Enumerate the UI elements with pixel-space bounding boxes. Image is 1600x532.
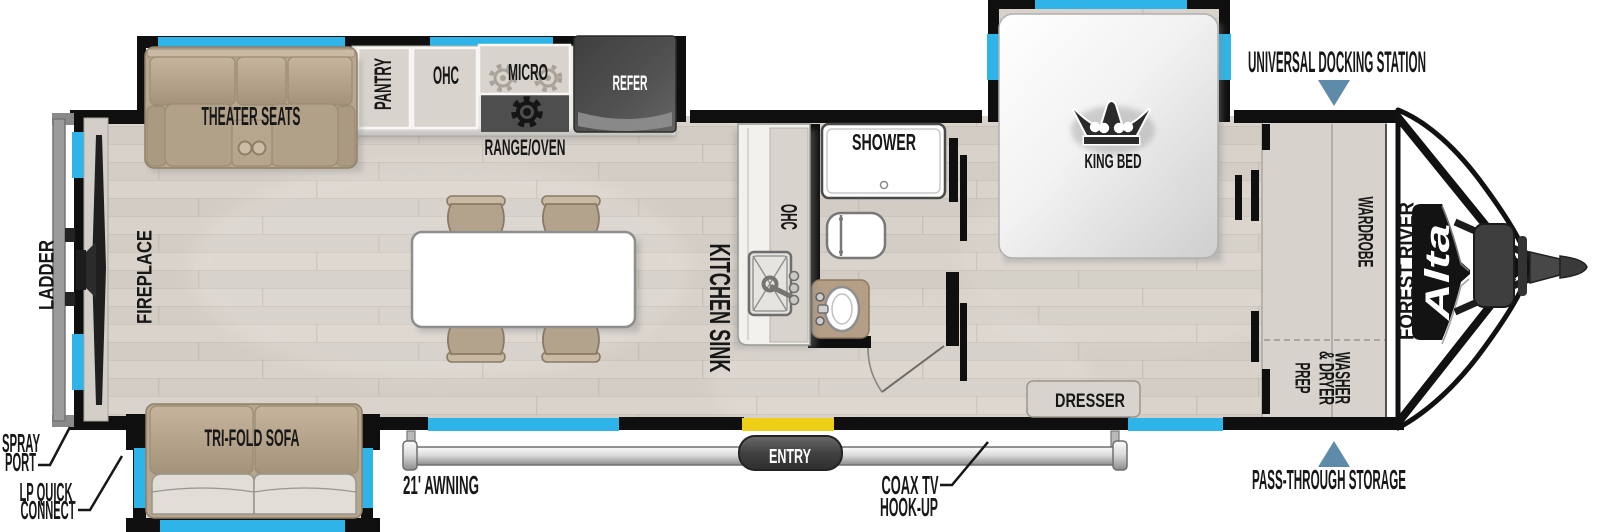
svg-text:ENTRY: ENTRY (769, 445, 812, 468)
svg-text:SHOWER: SHOWER (852, 130, 916, 156)
svg-text:OHC: OHC (433, 63, 459, 90)
svg-text:FIREPLACE: FIREPLACE (132, 230, 157, 324)
svg-text:THEATER SEATS: THEATER SEATS (202, 101, 301, 131)
svg-text:PANTRY: PANTRY (371, 58, 397, 110)
svg-text:DRESSER: DRESSER (1055, 390, 1125, 411)
svg-text:HOOK-UP: HOOK-UP (880, 492, 938, 522)
svg-text:21' AWNING: 21' AWNING (403, 470, 479, 500)
svg-text:TRI-FOLD SOFA: TRI-FOLD SOFA (205, 426, 300, 452)
svg-text:REFER: REFER (613, 71, 648, 95)
svg-text:Alta: Alta (1419, 224, 1457, 321)
svg-text:PASS-THROUGH STORAGE: PASS-THROUGH STORAGE (1252, 464, 1406, 495)
svg-text:RANGE/OVEN: RANGE/OVEN (485, 136, 566, 161)
svg-text:CONNECT: CONNECT (21, 495, 76, 525)
svg-text:FOREST RIVER: FOREST RIVER (1394, 202, 1419, 340)
svg-text:MICRO: MICRO (508, 60, 548, 86)
svg-text:UNIVERSAL DOCKING STATION: UNIVERSAL DOCKING STATION (1248, 47, 1426, 79)
svg-text:KING BED: KING BED (1085, 150, 1142, 173)
svg-text:& DRYER: & DRYER (1315, 351, 1340, 405)
svg-text:PORT: PORT (5, 447, 36, 477)
svg-text:KITCHEN SINK: KITCHEN SINK (703, 244, 735, 373)
svg-text:OHC: OHC (775, 204, 801, 230)
svg-text:LADDER: LADDER (34, 240, 59, 310)
svg-text:WARDROBE: WARDROBE (1354, 197, 1379, 268)
svg-text:PREP: PREP (1291, 363, 1316, 394)
